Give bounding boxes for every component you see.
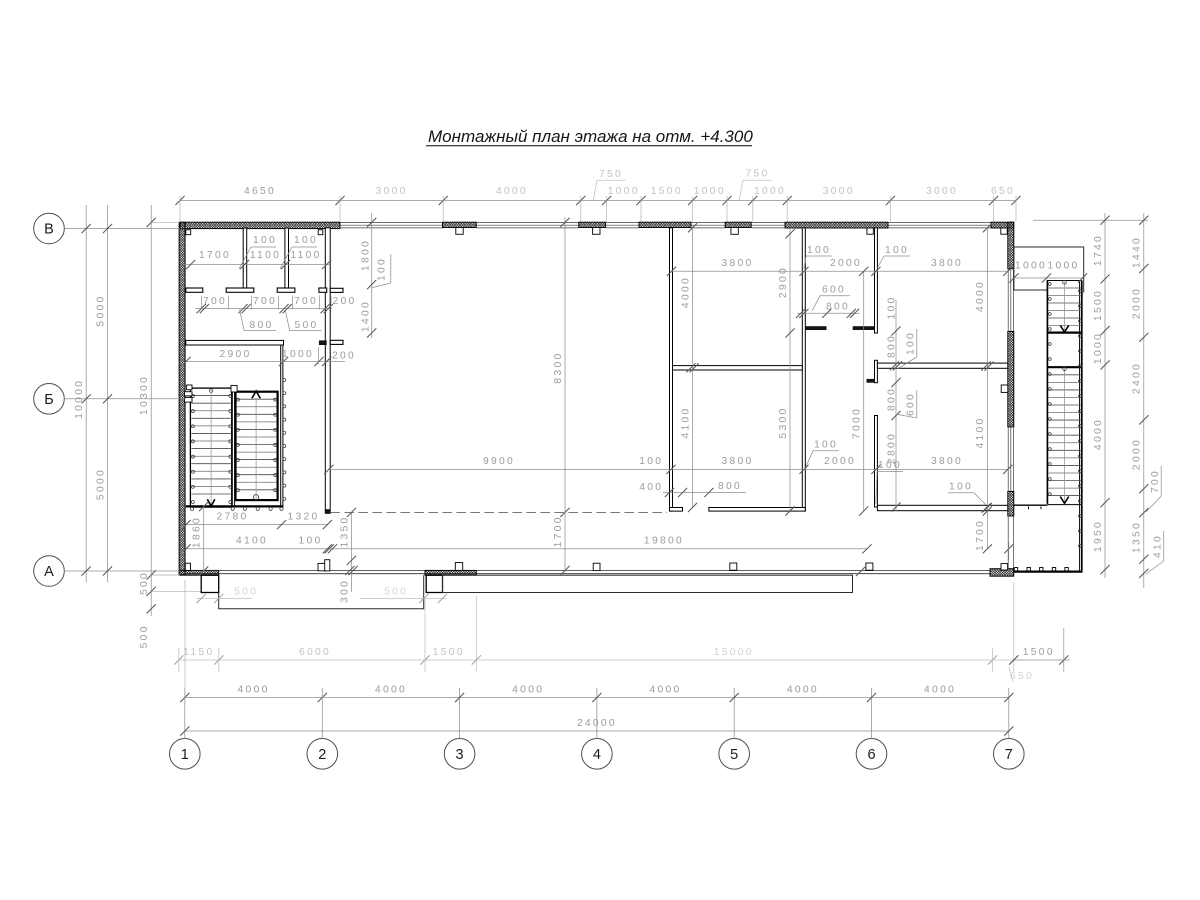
svg-text:500: 500 [139, 571, 150, 595]
svg-text:3000: 3000 [926, 186, 958, 197]
svg-text:200: 200 [332, 351, 356, 362]
svg-text:1000: 1000 [754, 186, 786, 197]
svg-text:1700: 1700 [975, 519, 986, 551]
svg-text:1350: 1350 [339, 515, 350, 547]
svg-text:1950: 1950 [1093, 520, 1104, 552]
svg-text:1350: 1350 [1132, 521, 1143, 553]
svg-text:4000: 4000 [1093, 418, 1104, 450]
svg-text:Б: Б [44, 392, 54, 408]
svg-text:500: 500 [384, 587, 408, 598]
svg-text:1860: 1860 [192, 516, 203, 548]
svg-text:1500: 1500 [1093, 289, 1104, 321]
svg-text:700: 700 [1150, 469, 1161, 493]
svg-text:100: 100 [906, 331, 917, 355]
svg-text:1500: 1500 [651, 186, 683, 197]
svg-text:1500: 1500 [1023, 647, 1055, 658]
svg-text:6000: 6000 [299, 647, 331, 658]
svg-text:7000: 7000 [852, 407, 863, 439]
svg-text:4000: 4000 [512, 684, 544, 695]
svg-text:700: 700 [253, 296, 277, 307]
svg-text:1500: 1500 [433, 647, 465, 658]
svg-text:2780: 2780 [216, 511, 248, 522]
svg-text:5300: 5300 [778, 406, 789, 438]
svg-text:800: 800 [887, 387, 898, 411]
svg-text:10000: 10000 [74, 379, 85, 419]
svg-text:4000: 4000 [496, 186, 528, 197]
svg-text:800: 800 [887, 334, 898, 358]
svg-text:3000: 3000 [376, 186, 408, 197]
svg-text:5000: 5000 [95, 294, 106, 326]
svg-text:750: 750 [745, 169, 769, 180]
svg-text:1: 1 [181, 747, 189, 763]
svg-text:4000: 4000 [375, 684, 407, 695]
svg-text:1000: 1000 [1093, 332, 1104, 364]
svg-text:100: 100 [887, 295, 898, 319]
svg-text:700: 700 [294, 296, 318, 307]
svg-text:24000: 24000 [577, 718, 617, 729]
svg-text:600: 600 [906, 392, 917, 416]
svg-text:1000: 1000 [282, 349, 314, 360]
svg-text:4000: 4000 [649, 684, 681, 695]
svg-text:750: 750 [599, 169, 623, 180]
svg-text:400: 400 [639, 482, 663, 493]
svg-text:Монтажный план этажа на отм. +: Монтажный план этажа на отм. +4.300 [428, 127, 753, 146]
svg-text:1800: 1800 [361, 239, 372, 271]
svg-text:2000: 2000 [1132, 438, 1143, 470]
svg-text:800: 800 [826, 302, 850, 313]
svg-text:1100: 1100 [250, 250, 281, 261]
svg-text:1440: 1440 [1132, 236, 1143, 268]
svg-text:2900: 2900 [778, 266, 789, 298]
svg-text:500: 500 [294, 320, 318, 331]
svg-text:100: 100 [807, 245, 831, 256]
svg-text:4000: 4000 [787, 684, 819, 695]
svg-text:200: 200 [332, 296, 356, 307]
svg-text:В: В [44, 222, 54, 238]
svg-text:4100: 4100 [975, 416, 986, 448]
svg-text:100: 100 [298, 536, 322, 547]
svg-text:2: 2 [318, 747, 326, 763]
svg-text:9900: 9900 [483, 456, 515, 467]
svg-text:А: А [44, 564, 54, 580]
svg-text:100: 100 [814, 440, 838, 451]
svg-text:1150: 1150 [183, 647, 214, 658]
svg-text:2000: 2000 [830, 258, 862, 269]
svg-text:3800: 3800 [931, 258, 963, 269]
svg-text:3800: 3800 [721, 456, 753, 467]
svg-text:100: 100 [949, 482, 973, 493]
svg-text:5000: 5000 [95, 468, 106, 500]
svg-text:1400: 1400 [361, 300, 372, 332]
svg-text:2900: 2900 [219, 349, 251, 360]
svg-text:100: 100 [878, 460, 902, 471]
svg-text:2400: 2400 [1132, 362, 1143, 394]
svg-text:5: 5 [730, 747, 738, 763]
svg-text:1700: 1700 [553, 515, 564, 547]
svg-text:500: 500 [234, 587, 258, 598]
svg-text:800: 800 [249, 320, 273, 331]
svg-text:8300: 8300 [553, 351, 564, 383]
svg-text:7: 7 [1005, 747, 1013, 763]
svg-text:1740: 1740 [1093, 234, 1104, 266]
svg-text:100: 100 [639, 456, 663, 467]
svg-text:700: 700 [203, 296, 227, 307]
svg-text:650: 650 [1010, 671, 1034, 682]
svg-text:100: 100 [253, 235, 277, 246]
svg-text:4000: 4000 [238, 684, 270, 695]
svg-text:15000: 15000 [714, 647, 754, 658]
svg-text:1100: 1100 [290, 250, 321, 261]
svg-text:300: 300 [339, 579, 350, 603]
svg-text:4650: 4650 [244, 186, 276, 197]
svg-text:10300: 10300 [139, 375, 150, 415]
svg-text:4000: 4000 [975, 280, 986, 312]
svg-text:4: 4 [593, 747, 601, 763]
svg-text:1000: 1000 [608, 186, 640, 197]
svg-text:3800: 3800 [931, 456, 963, 467]
svg-text:410: 410 [1153, 534, 1164, 558]
svg-text:1320: 1320 [287, 511, 319, 522]
svg-text:800: 800 [718, 481, 742, 492]
svg-text:1000: 1000 [1047, 260, 1079, 271]
svg-text:500: 500 [139, 624, 150, 648]
svg-text:4000: 4000 [680, 276, 691, 308]
svg-text:3800: 3800 [721, 258, 753, 269]
svg-text:6: 6 [867, 747, 875, 763]
svg-text:650: 650 [991, 186, 1015, 197]
svg-text:1700: 1700 [199, 250, 231, 261]
svg-text:4100: 4100 [680, 406, 691, 438]
svg-text:4000: 4000 [924, 684, 956, 695]
svg-text:4100: 4100 [236, 536, 268, 547]
svg-text:2000: 2000 [1132, 287, 1143, 319]
svg-text:2000: 2000 [824, 456, 856, 467]
svg-text:100: 100 [294, 235, 318, 246]
svg-text:3000: 3000 [823, 186, 855, 197]
svg-text:100: 100 [885, 245, 909, 256]
svg-text:100: 100 [377, 257, 388, 281]
svg-text:3: 3 [456, 747, 464, 763]
svg-text:1000: 1000 [694, 186, 726, 197]
svg-text:19800: 19800 [644, 536, 684, 547]
svg-text:1000: 1000 [1015, 260, 1047, 271]
svg-text:600: 600 [822, 285, 846, 296]
